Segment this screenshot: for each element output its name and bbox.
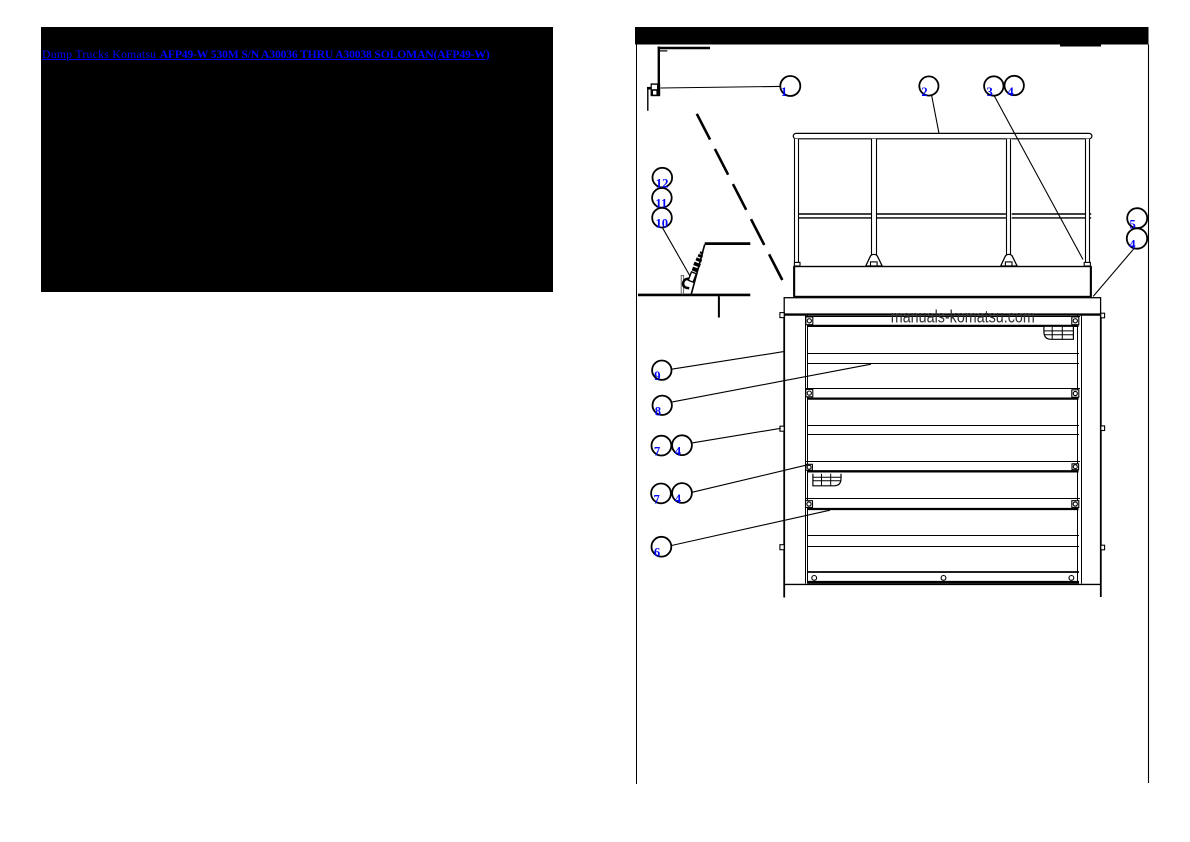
- svg-text:3: 3: [987, 85, 993, 99]
- svg-text:7: 7: [654, 445, 660, 459]
- svg-text:1: 1: [781, 85, 787, 99]
- svg-text:4: 4: [675, 492, 682, 506]
- svg-text:7: 7: [654, 492, 660, 506]
- svg-text:10: 10: [656, 217, 669, 231]
- svg-text:4: 4: [1007, 85, 1014, 99]
- svg-text:8: 8: [655, 404, 661, 418]
- svg-text:manuals-komatsu.com: manuals-komatsu.com: [891, 307, 1035, 327]
- svg-text:9: 9: [654, 369, 660, 383]
- svg-text:4: 4: [675, 444, 682, 458]
- svg-text:4: 4: [1129, 238, 1136, 252]
- svg-text:6: 6: [654, 546, 660, 560]
- svg-text:2: 2: [921, 85, 927, 99]
